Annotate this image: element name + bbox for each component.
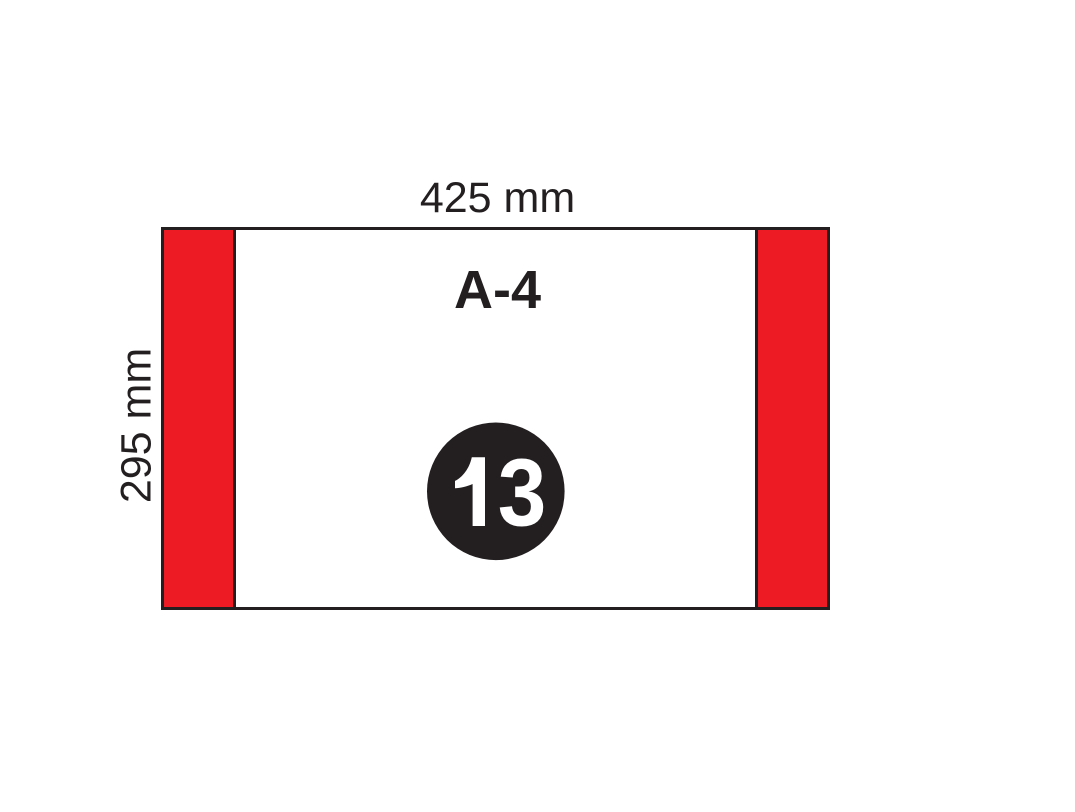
svg-text:3: 3 [498,440,547,547]
